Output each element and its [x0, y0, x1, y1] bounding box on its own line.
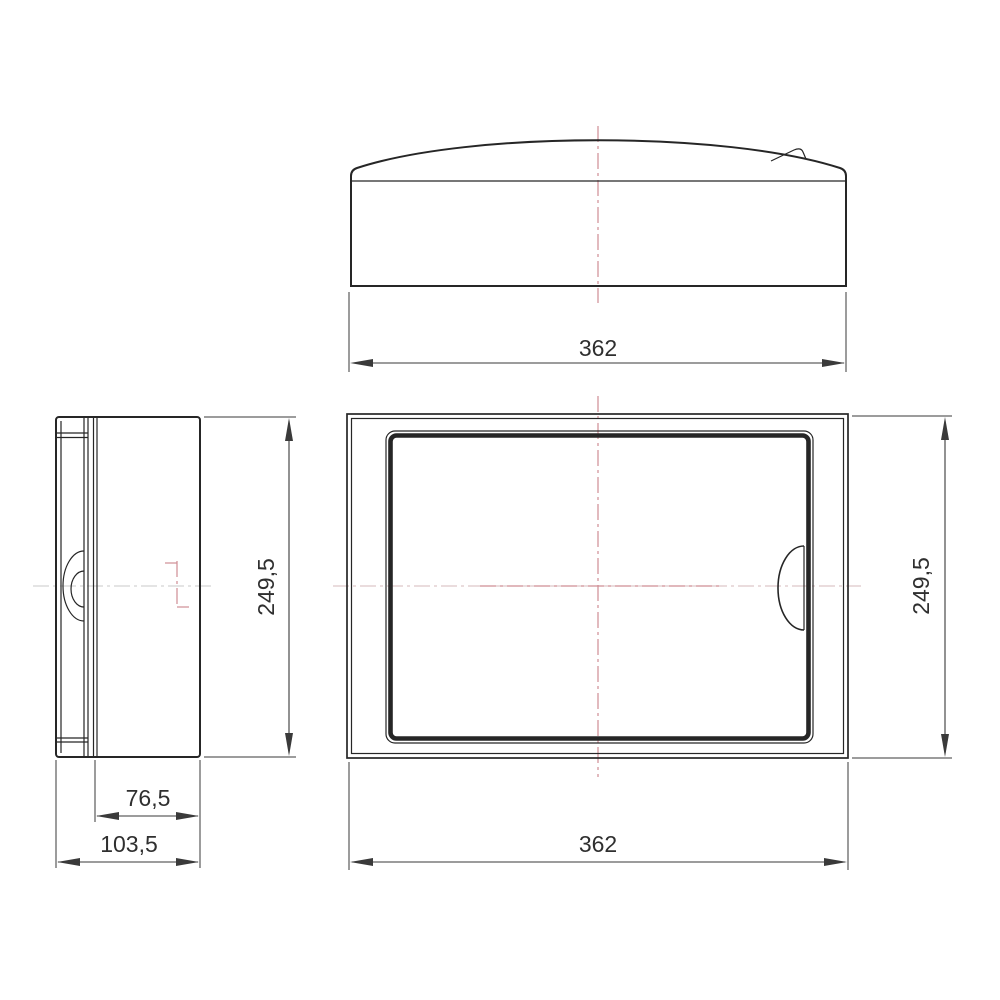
front-view-height-dimension: 249,5 — [852, 416, 952, 758]
top-view-width-dimension: 362 — [349, 292, 846, 372]
front-view-width-dimension: 362 — [349, 762, 848, 870]
front-view-handle-recess — [778, 546, 804, 630]
dimension-arrow-left — [350, 359, 373, 367]
dimension-arrow-left — [96, 812, 119, 820]
dimension-arrow-right — [822, 359, 845, 367]
dimension-arrow-right — [176, 858, 199, 866]
technical-drawing: 362 249,5 — [0, 0, 1000, 1000]
dimension-value: 249,5 — [253, 558, 279, 616]
dimension-arrow-down — [941, 734, 949, 757]
dimension-value: 362 — [579, 831, 617, 857]
dimension-arrow-down — [285, 733, 293, 756]
dimension-arrow-right — [176, 812, 199, 820]
extension-lines — [204, 417, 296, 757]
front-view: 249,5 362 — [333, 396, 952, 870]
side-view-door-back-lines — [84, 418, 88, 756]
front-view-door-outline — [386, 431, 813, 743]
side-view-body-front-lines — [94, 418, 98, 756]
dimension-value: 249,5 — [908, 557, 934, 615]
dimension-arrow-left — [350, 858, 373, 866]
front-view-door-frame — [391, 436, 809, 739]
dimension-arrow-left — [57, 858, 80, 866]
side-view-height-dimension: 249,5 — [204, 417, 296, 757]
drawing-canvas: 362 249,5 — [0, 0, 1000, 1000]
dimension-arrow-up — [285, 418, 293, 441]
dimension-value: 362 — [579, 335, 617, 361]
side-view-outline — [56, 417, 200, 757]
side-view: 249,5 76,5 103,5 — [33, 417, 296, 868]
top-view: 362 — [349, 126, 846, 372]
dimension-value: 76,5 — [126, 785, 171, 811]
dimension-arrow-right — [824, 858, 847, 866]
dimension-value: 103,5 — [100, 831, 158, 857]
extension-lines — [852, 416, 952, 758]
dimension-arrow-up — [941, 417, 949, 440]
side-view-handle-inner-arc — [71, 571, 84, 607]
